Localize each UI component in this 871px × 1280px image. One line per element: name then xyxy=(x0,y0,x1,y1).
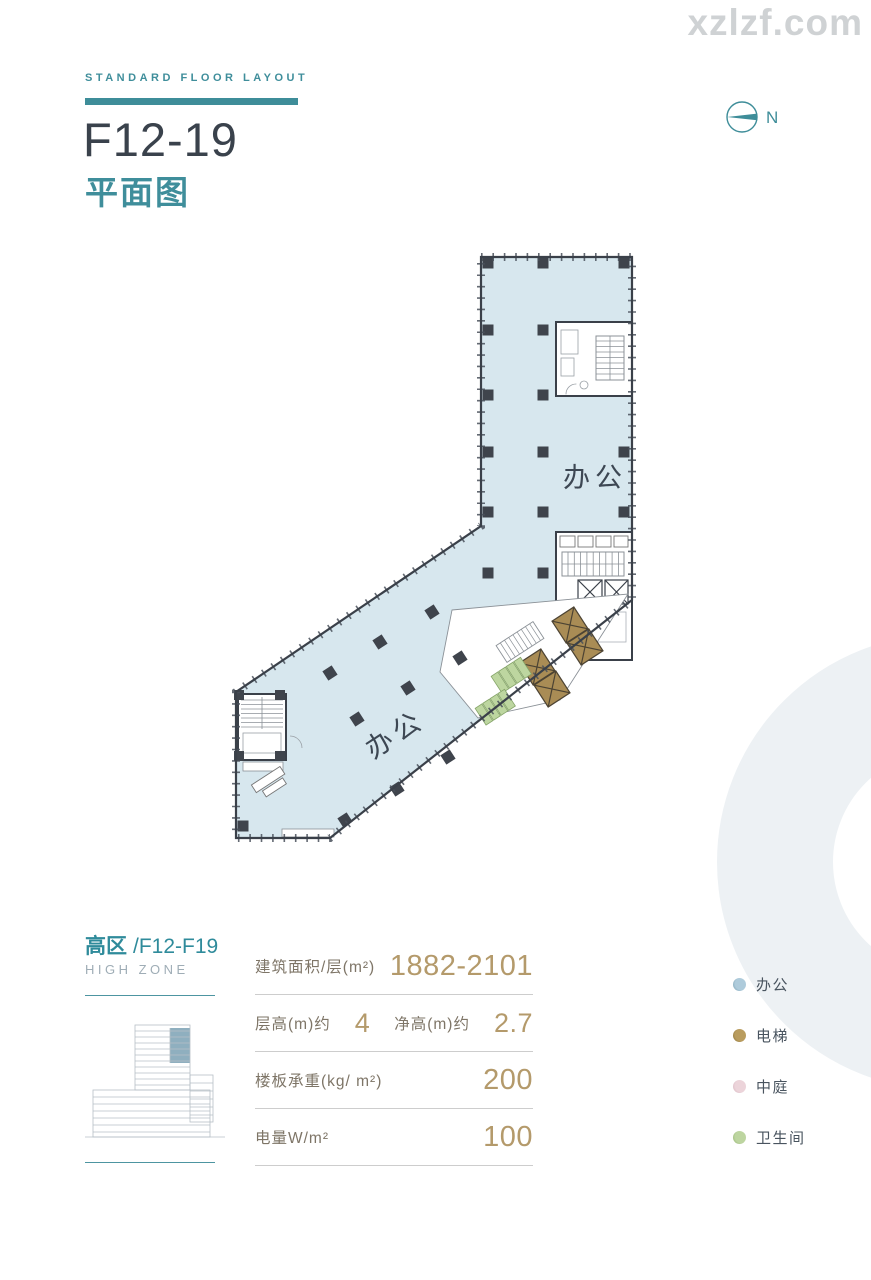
spec-label: 电量W/m² xyxy=(255,1126,329,1148)
zone-floors: /F12-F19 xyxy=(133,935,218,958)
accent-bar xyxy=(85,98,298,105)
upper-service-core xyxy=(556,322,632,396)
zone-name-en: HIGH ZONE xyxy=(85,962,189,977)
floor-plan-page: xzlzf.com STANDARD FLOOR LAYOUT F12-19 平… xyxy=(0,0,871,1280)
spec-value: 2.7 xyxy=(494,1008,533,1039)
spec-value: 100 xyxy=(483,1121,533,1154)
eyebrow-text: STANDARD FLOOR LAYOUT xyxy=(85,72,308,84)
zone-rule-bottom xyxy=(85,1162,215,1163)
spec-row-load: 楼板承重(kg/ m²) 200 xyxy=(255,1052,533,1109)
zone-name-cn: 高区 xyxy=(85,935,127,958)
legend-item-atrium: 中庭 xyxy=(733,1076,806,1097)
legend-label: 电梯 xyxy=(756,1025,789,1046)
legend-item-elevator: 电梯 xyxy=(733,1025,806,1046)
specs-table: 建筑面积/层(m²) 1882-2101 层高(m)约 4 净高(m)约 2.7… xyxy=(255,938,533,1166)
floor-plan: 办公 办公 xyxy=(215,240,675,860)
spec-value: 200 xyxy=(483,1064,533,1097)
page-subtitle: 平面图 xyxy=(85,166,190,214)
spec-value: 4 xyxy=(355,1008,371,1039)
compass-north-label: N xyxy=(766,108,778,127)
spec-label: 净高(m)约 xyxy=(394,1012,470,1034)
spec-label: 楼板承重(kg/ m²) xyxy=(255,1069,382,1091)
zone-title: 高区/F12-F19 xyxy=(85,930,218,960)
spec-label: 建筑面积/层(m²) xyxy=(255,955,375,977)
restroom-dot-icon xyxy=(733,1131,746,1144)
elevator-dot-icon xyxy=(733,1029,746,1042)
spec-label: 层高(m)约 xyxy=(255,1012,331,1034)
legend-label: 办公 xyxy=(756,974,789,995)
building-elevation xyxy=(85,1015,235,1150)
north-compass: N xyxy=(722,96,802,138)
high-zone-highlight xyxy=(170,1028,190,1063)
office-dot-icon xyxy=(733,978,746,991)
spec-value: 1882-2101 xyxy=(390,950,533,983)
zone-rule-top xyxy=(85,995,215,996)
legend-label: 卫生间 xyxy=(756,1127,806,1148)
legend-label: 中庭 xyxy=(756,1076,789,1097)
compass-needle-icon xyxy=(727,114,757,121)
entrance-notch xyxy=(282,829,334,837)
page-title: F12-19 xyxy=(83,112,238,167)
atrium-dot-icon xyxy=(733,1080,746,1093)
spec-row-power: 电量W/m² 100 xyxy=(255,1109,533,1166)
legend-item-restroom: 卫生间 xyxy=(733,1127,806,1148)
spec-row-area: 建筑面积/层(m²) 1882-2101 xyxy=(255,938,533,995)
legend: 办公 电梯 中庭 卫生间 xyxy=(733,974,806,1178)
watermark: xzlzf.com xyxy=(687,2,863,44)
spec-row-heights: 层高(m)约 4 净高(m)约 2.7 xyxy=(255,995,533,1052)
office-label-upper: 办公 xyxy=(563,463,627,493)
legend-item-office: 办公 xyxy=(733,974,806,995)
